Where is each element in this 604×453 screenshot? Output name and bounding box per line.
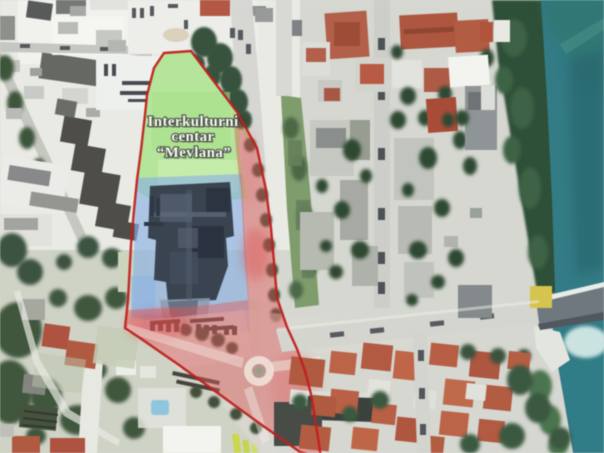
svg-text:Interkulturni: Interkulturni (147, 114, 238, 130)
svg-text:“Mevlana”: “Mevlana” (157, 145, 231, 161)
svg-text:centar: centar (171, 129, 214, 145)
